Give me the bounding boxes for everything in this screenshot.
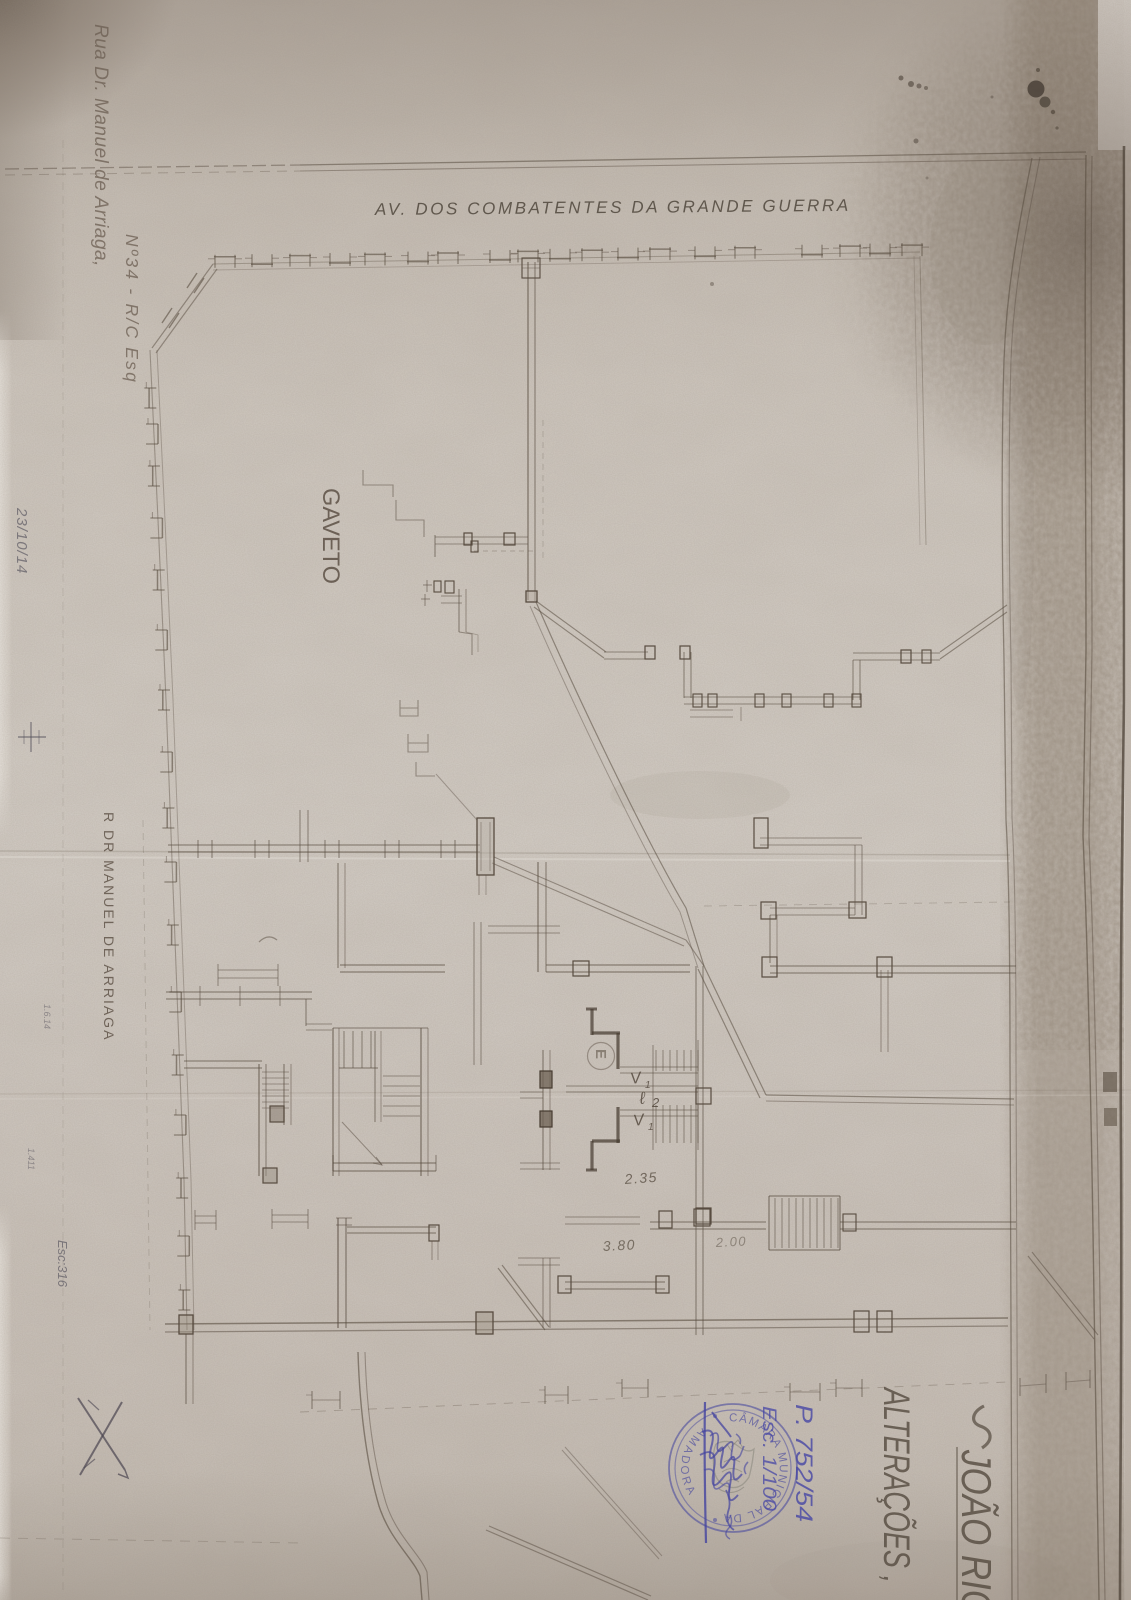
svg-text:1: 1: [648, 1122, 654, 1133]
svg-text:JOÃO RIC: JOÃO RIC: [953, 1449, 1000, 1600]
svg-text:ALTERAÇÕES ,: ALTERAÇÕES ,: [876, 1387, 917, 1583]
svg-text:2: 2: [651, 1095, 660, 1110]
svg-text:23/10/14: 23/10/14: [13, 507, 30, 574]
svg-text:2.00: 2.00: [714, 1233, 747, 1250]
svg-text:3.80: 3.80: [602, 1236, 636, 1254]
svg-text:2.35: 2.35: [623, 1169, 658, 1187]
svg-text:1.411: 1.411: [26, 1148, 36, 1170]
svg-text:GAVETO: GAVETO: [317, 488, 344, 584]
svg-text:Rua Dr. Manuel de Arriaga,: Rua Dr. Manuel de Arriaga,: [90, 24, 111, 267]
svg-text:Nº34 - R/C Esq: Nº34 - R/C Esq: [122, 234, 142, 384]
svg-text:E: E: [592, 1049, 609, 1059]
svg-text:R DR MANUEL DE ARRIAGA: R DR MANUEL DE ARRIAGA: [101, 812, 117, 1041]
svg-text:P. 752/54: P. 752/54: [790, 1404, 817, 1522]
svg-text:1: 1: [645, 1080, 651, 1091]
svg-text:Esc:316: Esc:316: [55, 1240, 70, 1288]
svg-text:Esc. 1/100: Esc. 1/100: [758, 1406, 779, 1512]
svg-text:1.6.14: 1.6.14: [42, 1004, 52, 1029]
